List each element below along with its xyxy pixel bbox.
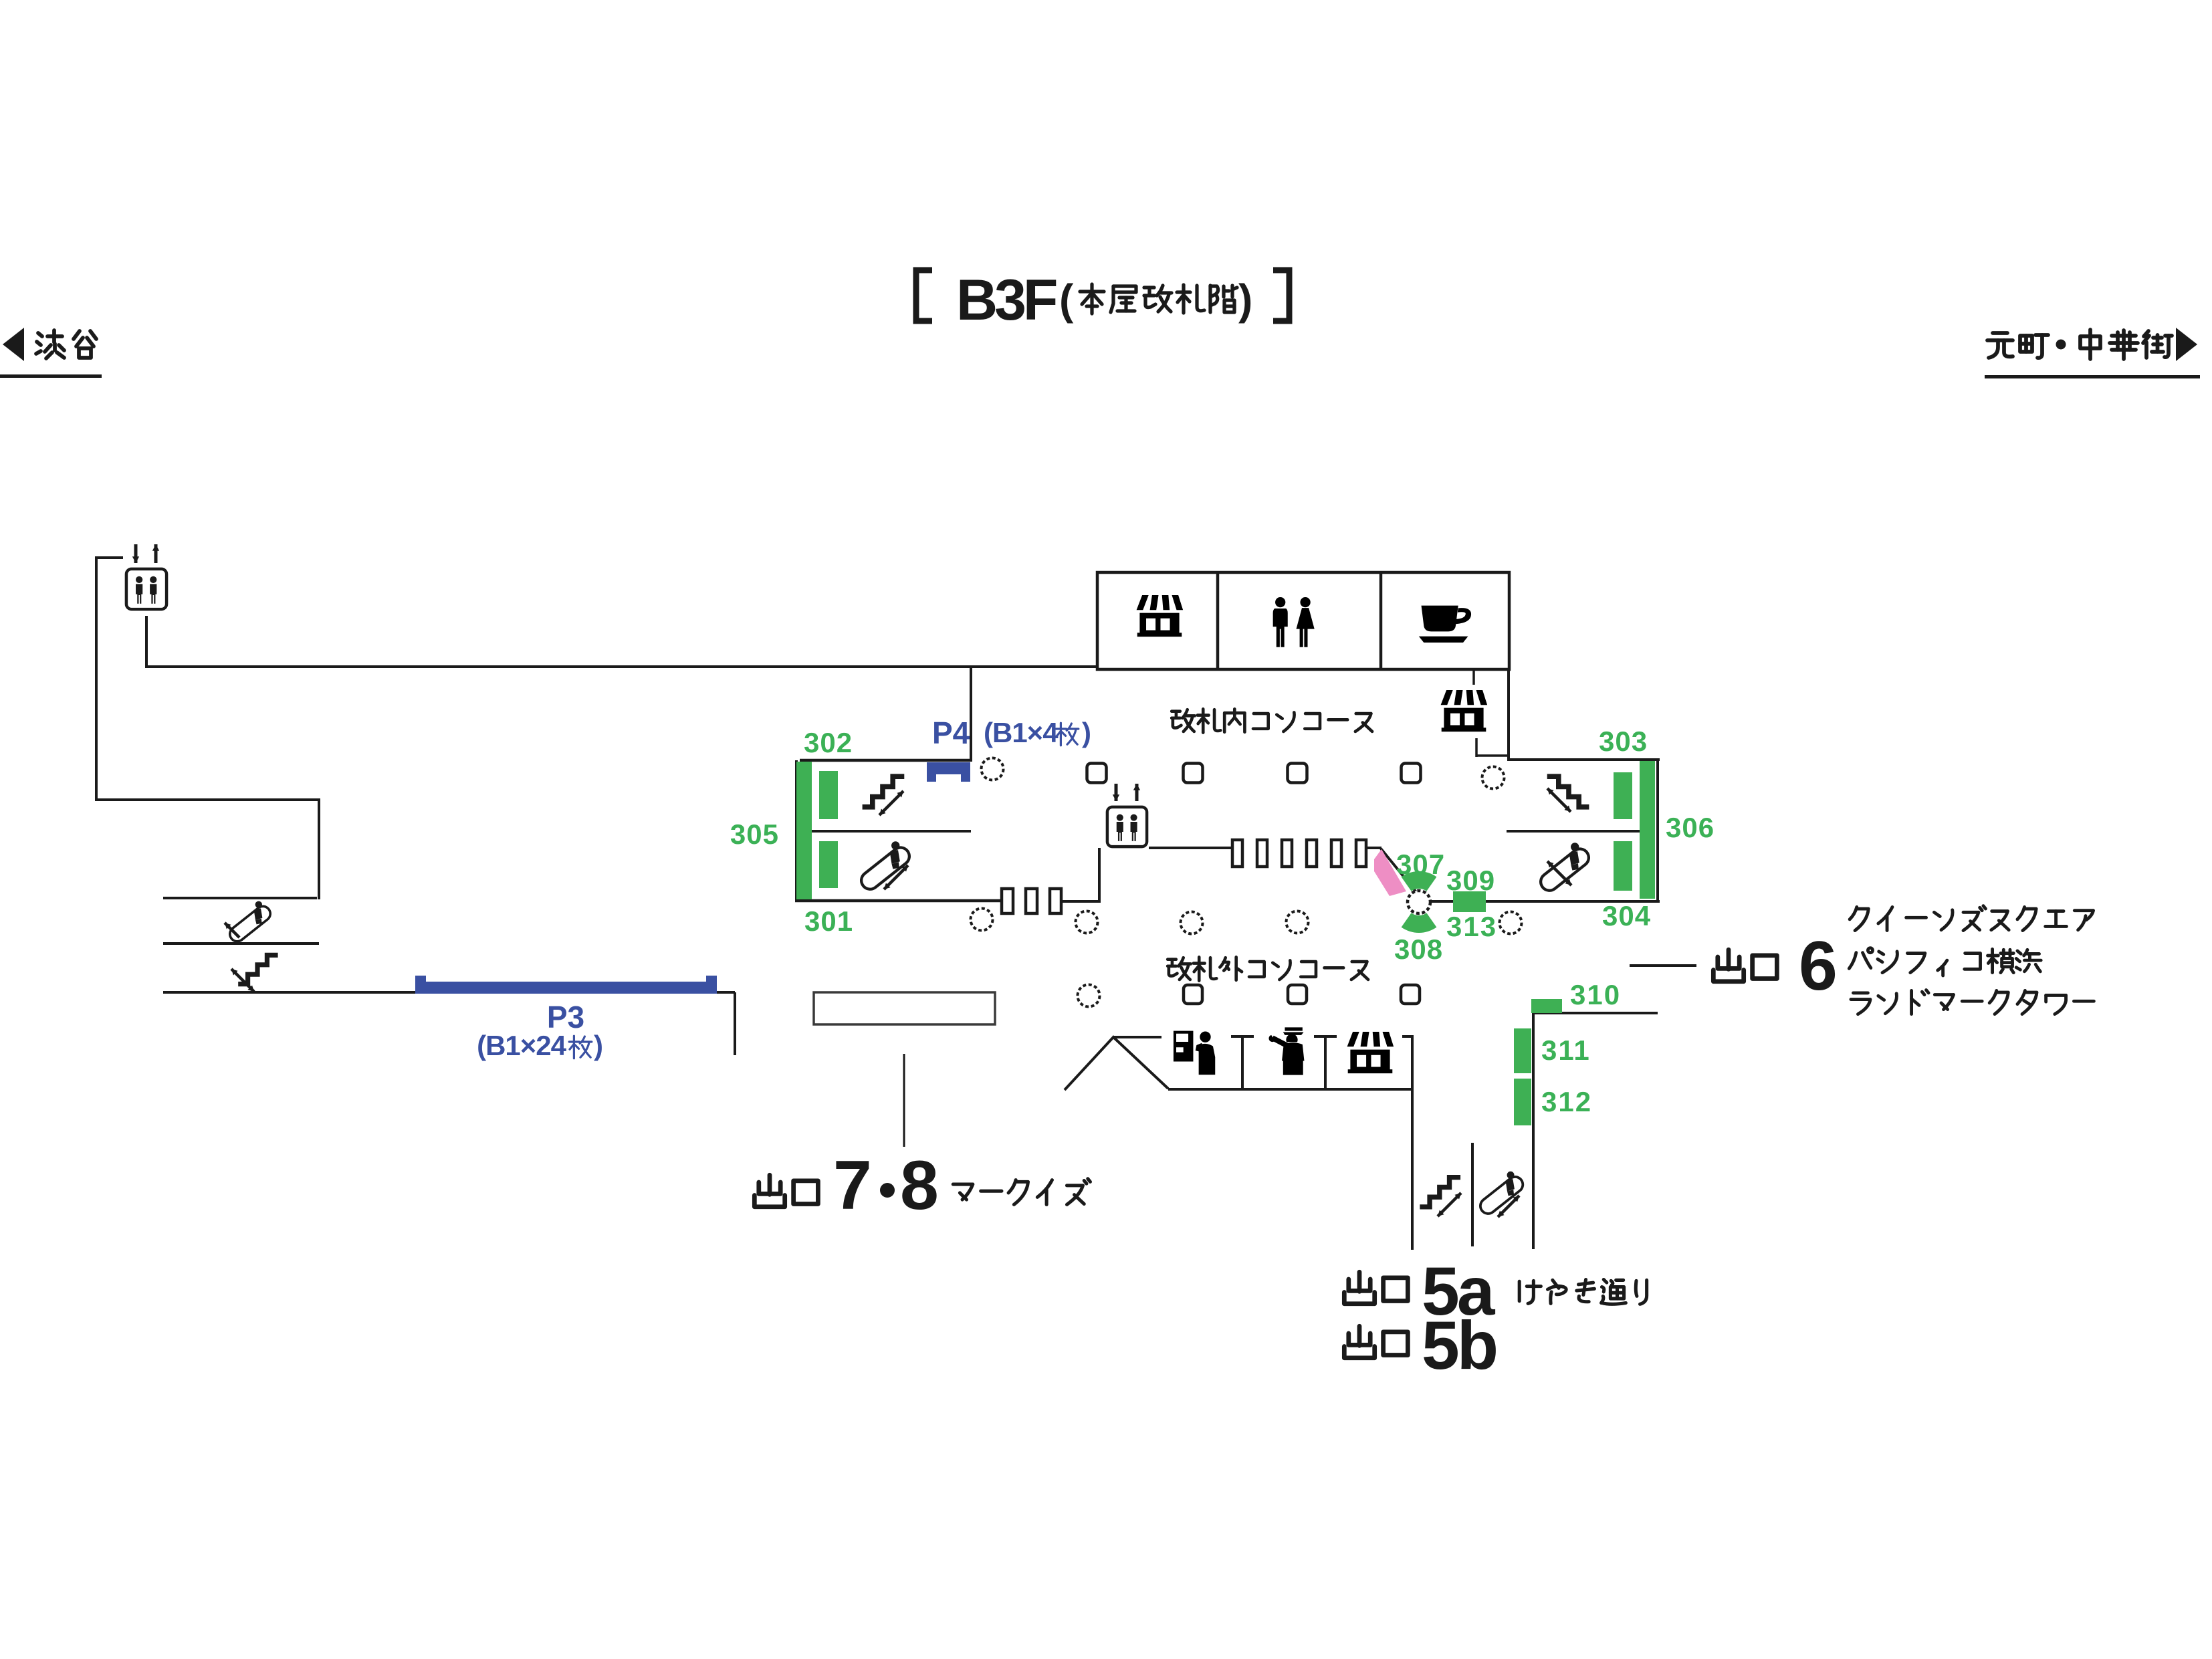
- svg-text:(B1×24: (B1×24: [477, 1030, 567, 1061]
- svg-text:301: 301: [804, 905, 853, 937]
- svg-text:5b: 5b: [1422, 1307, 1497, 1384]
- svg-text:304: 304: [1602, 900, 1651, 931]
- svg-text:308: 308: [1394, 933, 1443, 965]
- svg-text:306: 306: [1666, 812, 1715, 843]
- svg-text:311: 311: [1541, 1034, 1591, 1066]
- svg-text:6: 6: [1799, 927, 1838, 1005]
- svg-text:307: 307: [1396, 849, 1445, 880]
- svg-text:309: 309: [1446, 865, 1495, 896]
- svg-text:303: 303: [1599, 726, 1648, 757]
- svg-text:): ): [1238, 275, 1252, 324]
- svg-text:): ): [594, 1030, 603, 1061]
- svg-text:302: 302: [804, 727, 853, 758]
- svg-text:P4: P4: [932, 715, 970, 750]
- svg-text:305: 305: [730, 818, 779, 850]
- svg-text:313: 313: [1446, 911, 1497, 942]
- svg-text:8: 8: [900, 1147, 939, 1224]
- svg-text:B3F: B3F: [956, 268, 1057, 332]
- svg-text:7: 7: [833, 1147, 872, 1224]
- svg-text:312: 312: [1541, 1086, 1592, 1117]
- svg-text:310: 310: [1570, 979, 1621, 1010]
- svg-text:(B1×4: (B1×4: [984, 717, 1059, 748]
- svg-text:(: (: [1059, 275, 1074, 324]
- svg-text:): ): [1082, 717, 1091, 748]
